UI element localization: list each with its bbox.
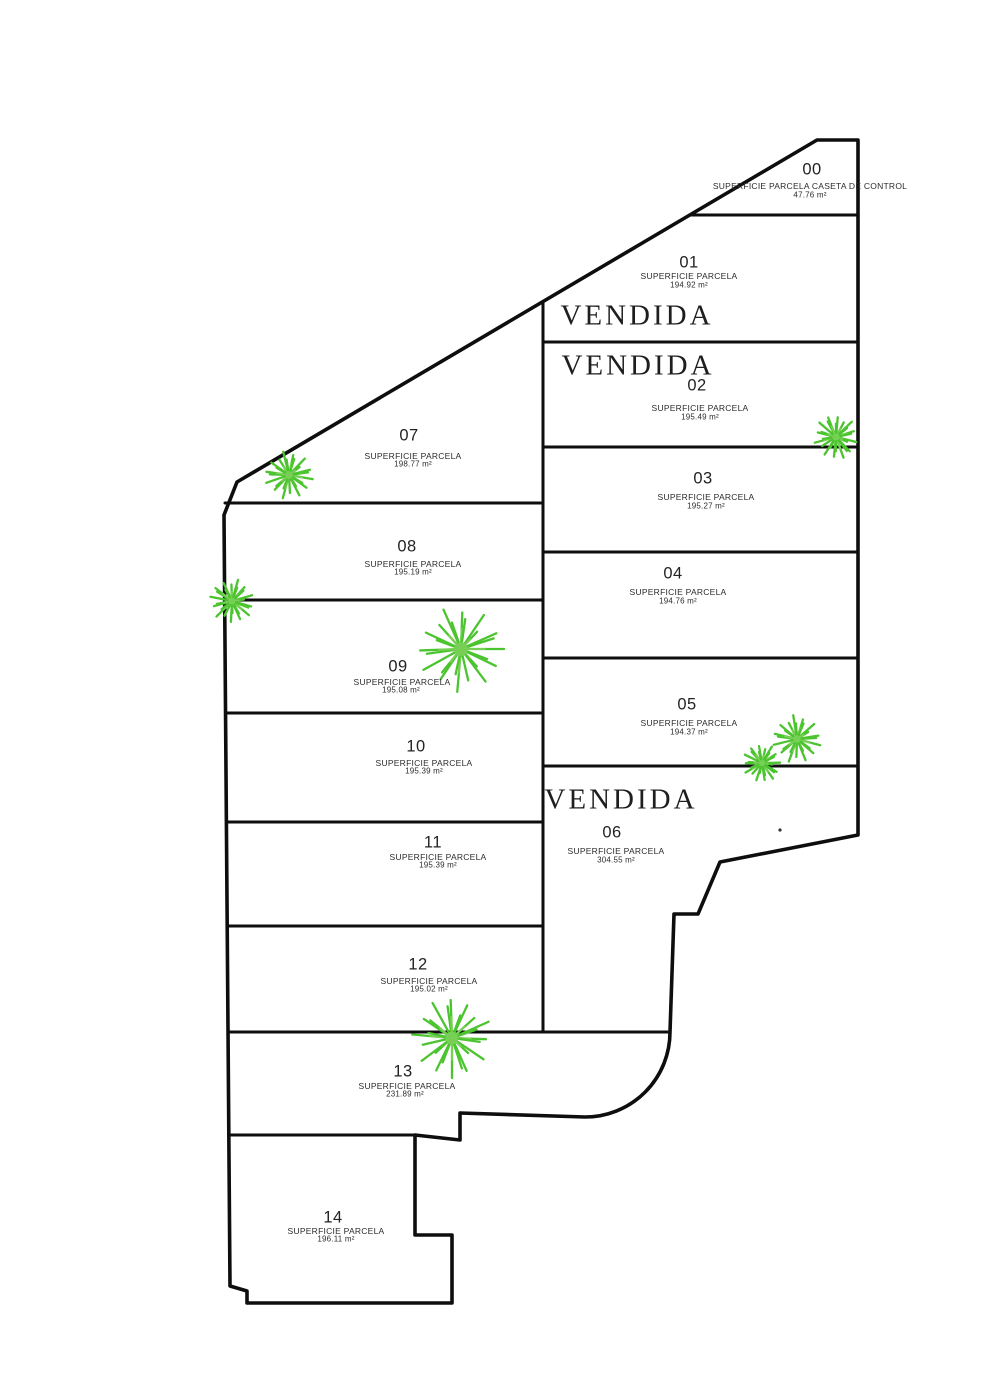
plot-outline — [224, 140, 858, 1303]
site-plan-svg — [0, 0, 989, 1400]
plant-center — [454, 642, 468, 656]
survey-point-dot — [778, 828, 781, 831]
parcel-plan-canvas: 00SUPERFICIE PARCELA CASETA DE CONTROL47… — [0, 0, 989, 1400]
plant-center — [446, 1032, 459, 1045]
